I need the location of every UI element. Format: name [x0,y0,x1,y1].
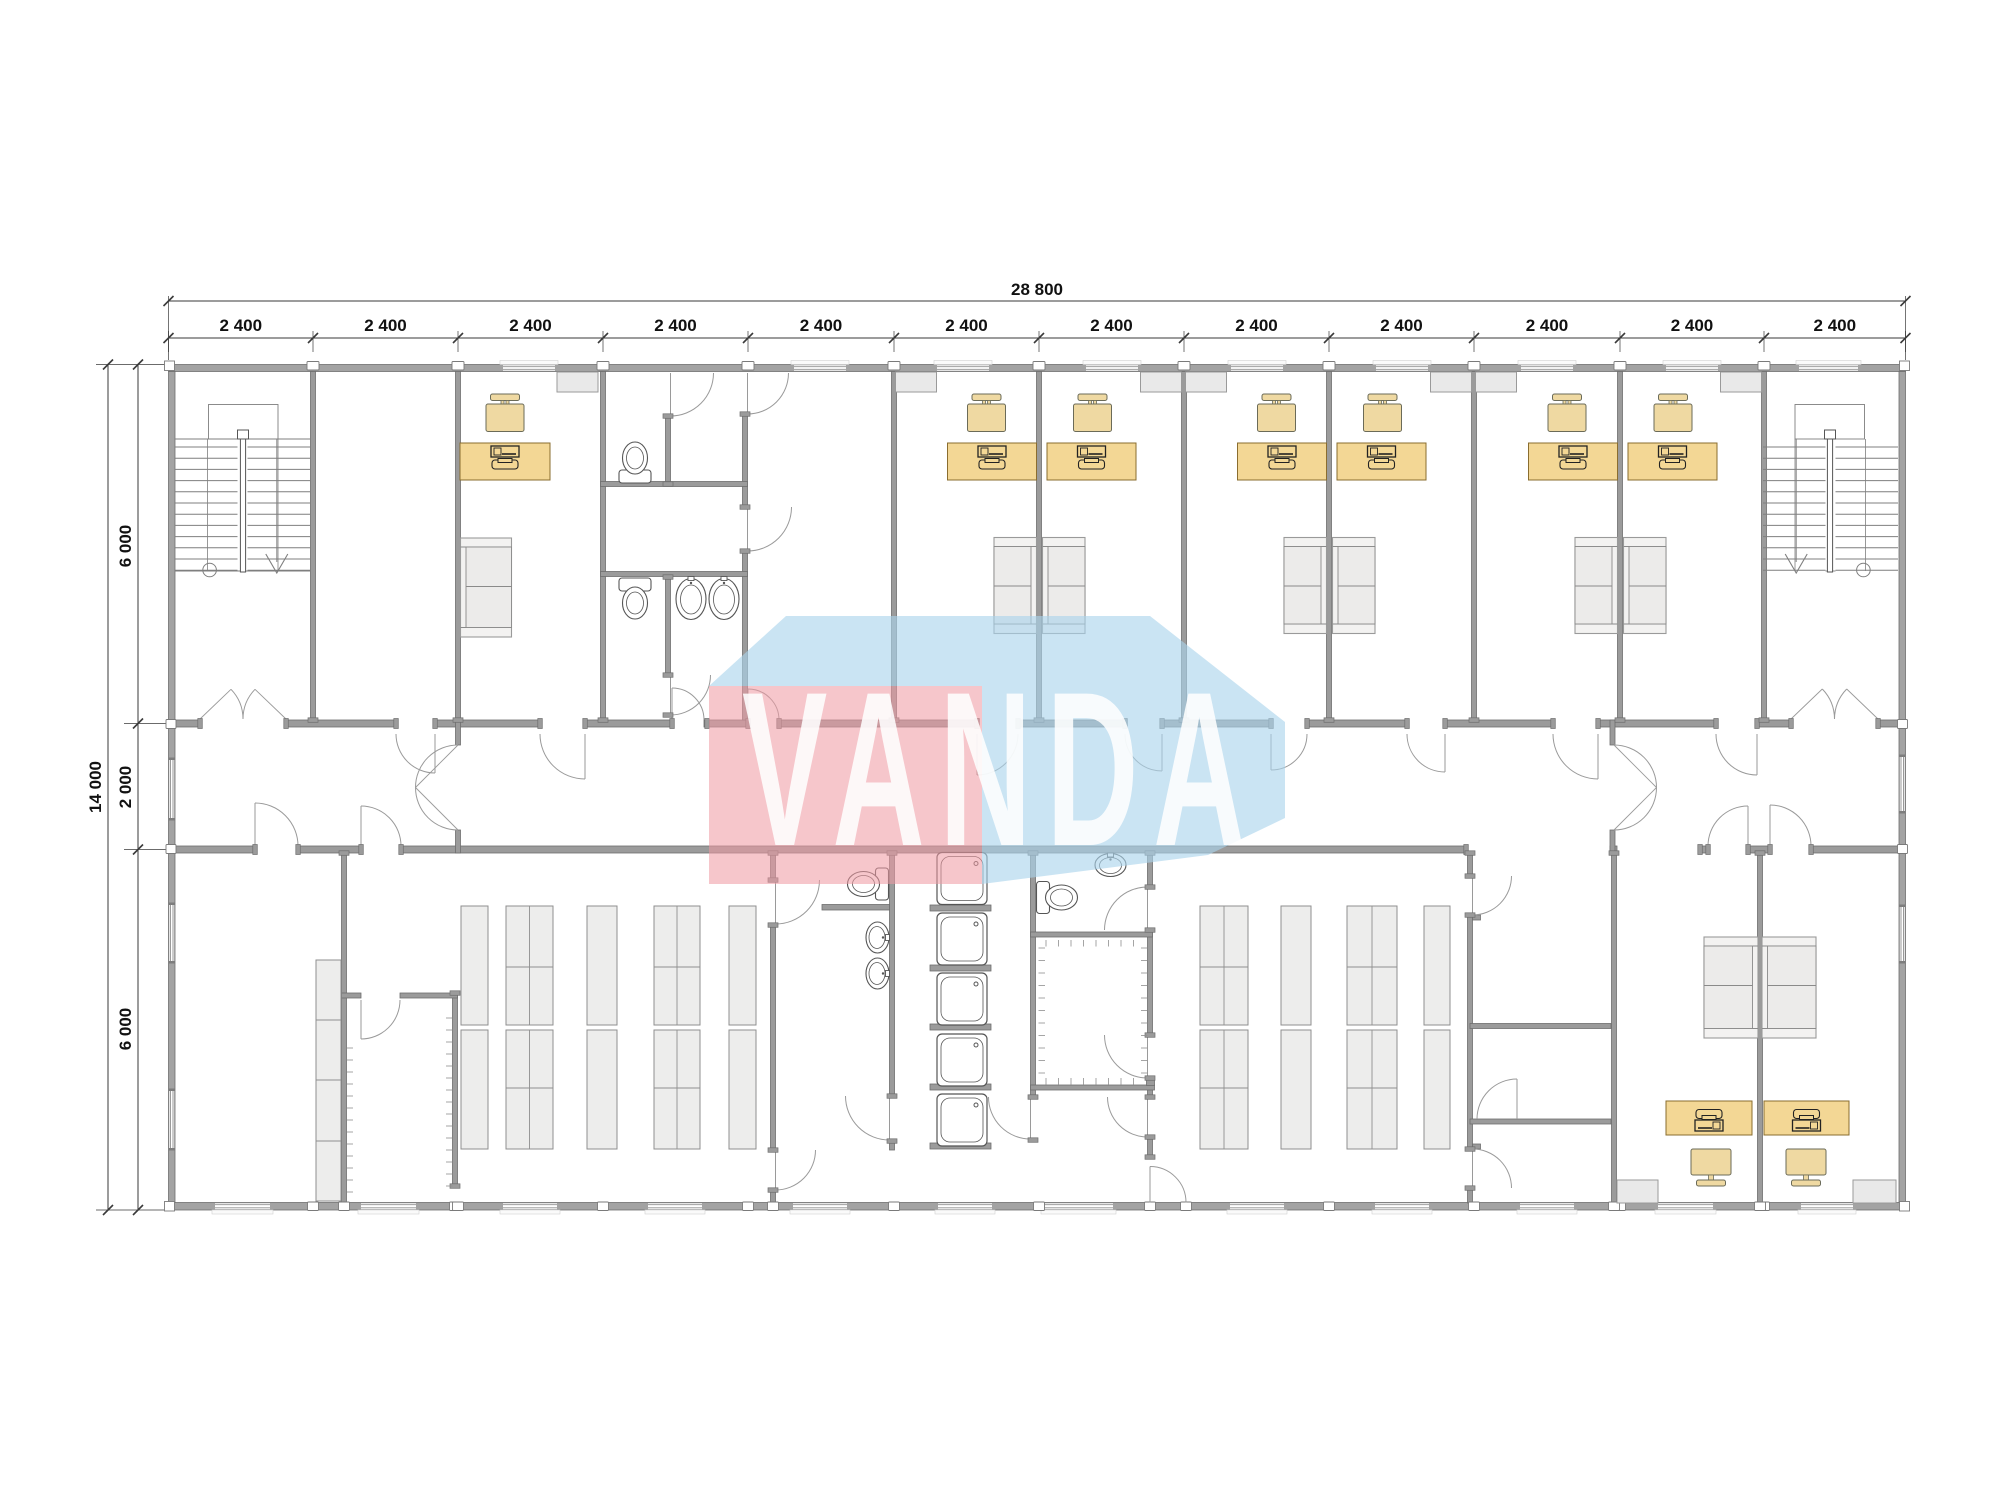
svg-text:2 400: 2 400 [654,316,697,335]
svg-text:6 000: 6 000 [116,1008,135,1051]
svg-text:2 400: 2 400 [1090,316,1133,335]
svg-text:2 400: 2 400 [945,316,988,335]
svg-text:2 400: 2 400 [1380,316,1423,335]
svg-text:VANDA: VANDA [742,646,1260,892]
svg-text:2 400: 2 400 [1814,316,1857,335]
svg-text:2 400: 2 400 [1671,316,1714,335]
svg-text:2 000: 2 000 [116,766,135,809]
svg-text:14 000: 14 000 [86,761,105,813]
svg-text:2 400: 2 400 [1235,316,1278,335]
svg-text:28 800: 28 800 [1011,280,1063,299]
svg-text:6 000: 6 000 [116,525,135,568]
svg-text:2 400: 2 400 [220,316,263,335]
svg-text:2 400: 2 400 [1526,316,1569,335]
svg-text:2 400: 2 400 [364,316,407,335]
svg-text:2 400: 2 400 [800,316,843,335]
svg-text:2 400: 2 400 [509,316,552,335]
